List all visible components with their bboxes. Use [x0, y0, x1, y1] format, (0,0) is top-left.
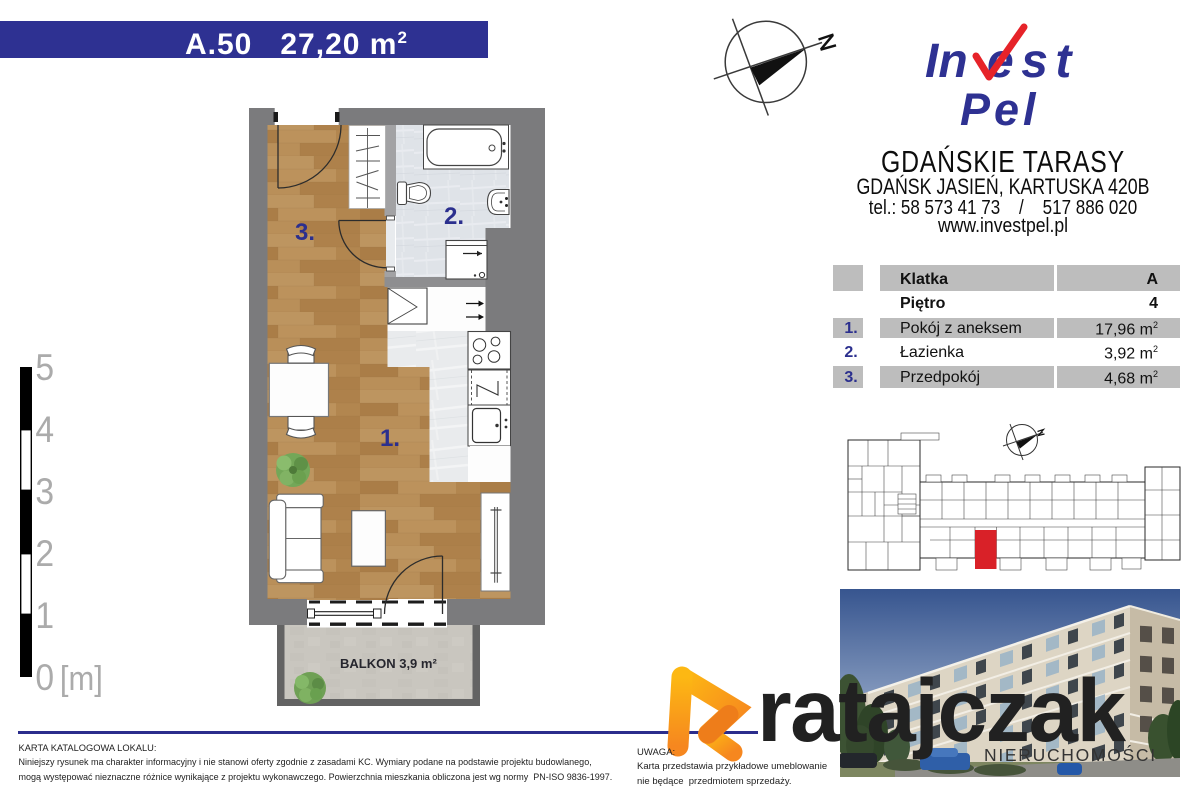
- svg-text:5: 5: [35, 348, 54, 389]
- svg-text:BALKON 3,9 m²: BALKON 3,9 m²: [340, 656, 437, 671]
- svg-text:2.: 2.: [444, 203, 464, 230]
- svg-text:3.: 3.: [295, 219, 315, 246]
- svg-text:3: 3: [35, 472, 54, 513]
- svg-text:1: 1: [35, 596, 54, 637]
- svg-text:2: 2: [35, 534, 54, 575]
- svg-text:[m]: [m]: [60, 660, 103, 698]
- svg-text:1.: 1.: [380, 425, 400, 452]
- svg-text:0: 0: [35, 658, 54, 699]
- svg-text:4: 4: [35, 410, 54, 451]
